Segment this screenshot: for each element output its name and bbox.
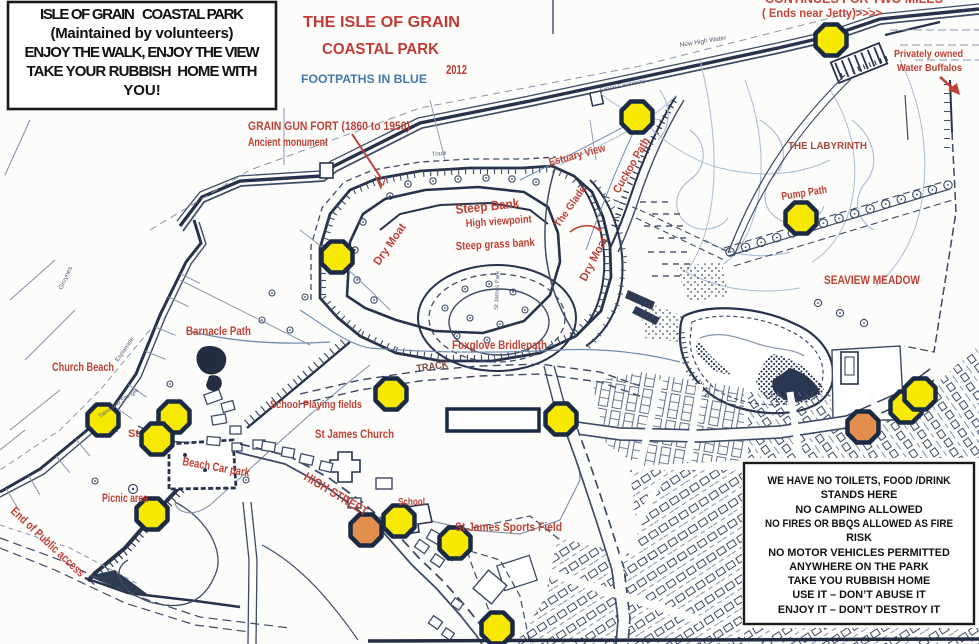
- svg-text:2012: 2012: [446, 63, 467, 77]
- svg-text:St James Church: St James Church: [315, 429, 394, 441]
- svg-text:Water Buffalos: Water Buffalos: [897, 62, 962, 74]
- svg-text:STANDS HERE: STANDS HERE: [821, 489, 898, 501]
- svg-text:St James Sports Field: St James Sports Field: [455, 522, 562, 534]
- svg-text:Ancient monument: Ancient monument: [248, 137, 328, 149]
- svg-text:School Playing fields: School Playing fields: [270, 399, 362, 411]
- svg-text:Foxglove Bridlepath: Foxglove Bridlepath: [452, 340, 547, 352]
- svg-text:NO MOTOR VEHICLES PERMITTED: NO MOTOR VEHICLES PERMITTED: [768, 547, 950, 559]
- svg-text:ENJOY IT – DON’T DESTROY IT: ENJOY IT – DON’T DESTROY IT: [778, 604, 941, 616]
- svg-text:TAKE YOU RUBBISH HOME: TAKE YOU RUBBISH HOME: [788, 575, 930, 587]
- svg-text:Church Beach: Church Beach: [52, 362, 114, 374]
- svg-text:WE HAVE NO TOILETS, FOOD /DRIN: WE HAVE NO TOILETS, FOOD /DRINK: [768, 475, 951, 487]
- svg-text:School: School: [398, 496, 425, 508]
- svg-text:NO FIRES OR BBQS ALLOWED AS FI: NO FIRES OR BBQS ALLOWED AS FIRE: [765, 518, 953, 530]
- svg-text:(Maintained by volunteers): (Maintained by volunteers): [51, 25, 234, 42]
- svg-text:USE IT – DON’T ABUSE IT: USE IT – DON’T ABUSE IT: [792, 589, 926, 601]
- svg-text:SEAVIEW MEADOW: SEAVIEW MEADOW: [824, 275, 920, 287]
- svg-text:ISLE OF GRAIN COASTAL PARK: ISLE OF GRAIN COASTAL PARK: [40, 6, 244, 23]
- svg-text:FOOTPATHS IN BLUE: FOOTPATHS IN BLUE: [301, 74, 427, 86]
- svg-text:Privately owned: Privately owned: [894, 48, 963, 60]
- svg-text:THE LABYRINTH: THE LABYRINTH: [788, 140, 867, 152]
- svg-text:Barnacle Path: Barnacle Path: [186, 326, 251, 338]
- svg-text:St: St: [128, 428, 139, 440]
- svg-text:THE ISLE OF GRAIN: THE ISLE OF GRAIN: [303, 14, 460, 31]
- svg-text:( Ends near Jetty)>>>>: ( Ends near Jetty)>>>>: [762, 6, 882, 20]
- svg-text:GRAIN GUN FORT (1860 to 1956): GRAIN GUN FORT (1860 to 1956): [248, 121, 410, 133]
- svg-text:Picnic area: Picnic area: [102, 493, 148, 505]
- svg-text:RISK: RISK: [846, 532, 872, 544]
- svg-text:ENJOY THE WALK, ENJOY THE VIEW: ENJOY THE WALK, ENJOY THE VIEW: [25, 44, 261, 61]
- svg-text:TAKE YOUR RUBBISH HOME WITH: TAKE YOUR RUBBISH HOME WITH: [27, 63, 258, 80]
- svg-text:YOU!: YOU!: [123, 82, 161, 99]
- svg-text:ANYWHERE ON THE PARK: ANYWHERE ON THE PARK: [789, 561, 929, 573]
- svg-text:COASTAL PARK: COASTAL PARK: [322, 41, 439, 58]
- svg-text:NO CAMPING ALLOWED: NO CAMPING ALLOWED: [795, 504, 923, 516]
